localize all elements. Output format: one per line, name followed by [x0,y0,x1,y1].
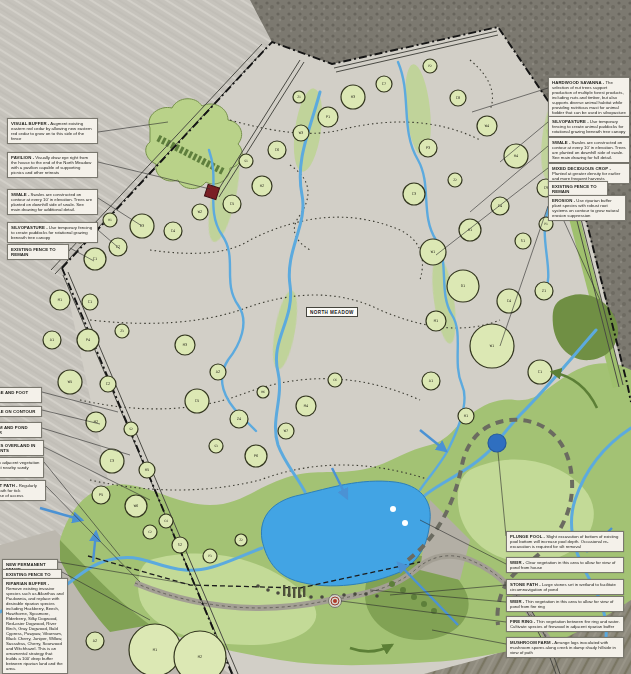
tree-canopy: P4 [77,329,99,351]
tree-canopy: C4 [491,197,509,215]
tree-code-label: H3 [351,95,355,99]
tree-code-label: P2 [428,64,432,68]
tree-canopy: O1 [447,270,479,302]
callout-weir: WEIR - Clear vegetation in this area to … [506,557,624,573]
tree-canopy: W1 [420,239,446,265]
tree-code-label: C4 [171,229,175,233]
tree-canopy: Z4 [230,410,248,428]
tree-canopy: H1 [458,408,474,424]
tree-canopy: W4 [477,116,497,136]
tree-code-label: C7 [382,82,386,86]
tree-canopy: M2 [86,412,106,432]
tree-canopy: M1 [129,624,181,674]
tree-code-label: Z3 [120,329,124,333]
tree-canopy: A1 [422,372,440,390]
tree-canopy: W2 [192,204,208,220]
tree-canopy: S2 [124,422,138,436]
tree-code-label: H6 [261,390,265,394]
tree-code-label: S3 [214,444,218,448]
tree-code-label: A1 [429,379,433,383]
tree-canopy: W5 [58,370,82,394]
callout-horse-and-foot-path: HORSE AND FOOT PATH - Regularly mow and … [0,480,46,501]
tree-code-label: S2 [178,543,182,547]
tree-canopy: C1 [528,360,552,384]
tree-code-label: P3 [208,554,212,558]
tree-canopy: M1 [426,311,446,331]
tree-canopy: M3 [175,335,195,355]
tree-canopy: C3 [100,449,124,473]
tree-canopy: A2 [86,632,104,650]
tree-code-label: C4 [507,299,511,303]
tree-code-label: W1 [490,344,494,348]
tree-canopy: P2 [423,59,437,73]
callout-swale: SWALE - Swales are constructed on contou… [7,189,98,215]
tree-canopy: C7 [376,76,392,92]
tree-canopy: W1 [470,324,514,368]
tree-code-label: C1 [88,300,92,304]
tree-code-label: P3 [426,146,430,150]
north-meadow-label: NORTH MEADOW [306,307,358,317]
tree-code-label: W4 [485,124,489,128]
plunge-pool [488,434,506,452]
tree-canopy: W7 [278,423,294,439]
tree-canopy: S1 [239,154,253,168]
callout-waterfall: WATERFALL - Thin adjacent vegetation to … [0,457,44,478]
tree-canopy: H1 [103,213,117,227]
callout-riparian-buffer: RIPARIAN BUFFER - Remove existing invasi… [2,578,68,674]
tree-code-label: Z1 [542,289,546,293]
tree-canopy: M4 [296,396,316,416]
tree-canopy: C1 [82,294,98,310]
tree-canopy: Z1 [293,91,305,103]
tree-canopy: C6 [268,141,286,159]
tree-code-label: M1 [58,298,62,302]
callout-swale: SWALE - Swales are constructed on contou… [548,137,630,163]
tree-canopy: A1 [43,331,61,349]
tree-code-label: S1 [244,159,248,163]
tree-canopy: H6 [257,386,269,398]
tree-code-label: Z4 [237,417,241,421]
callout-horse-and-foot-path: HORSE AND FOOT PATH [0,387,42,403]
tree-code-label: C1 [538,370,542,374]
callout-pavilion: PAVILION - Visually draw eye right from … [7,152,98,178]
tree-code-label: C2 [148,530,152,534]
tree-canopy: P5 [92,486,110,504]
callout-existing-fence-to-remain: EXISTING FENCE TO REMAIN [7,244,69,260]
tree-code-label: A2 [93,639,97,643]
tree-code-label: P1 [544,222,548,226]
tree-code-label: Z1 [297,95,301,99]
tree-canopy: H2 [252,176,272,196]
tree-code-label: Z2 [453,178,457,182]
tree-code-label: W3 [299,131,303,135]
tree-code-label: M1 [153,648,157,652]
tree-canopy: Z2 [235,534,247,546]
tree-code-label: C3 [412,192,416,196]
tree-code-label: C8 [456,96,460,100]
tree-canopy: Z1 [535,282,553,300]
tree-code-label: C5 [195,399,199,403]
tree-code-label: H5 [145,468,149,472]
tree-canopy: Z2 [448,173,462,187]
tree-canopy: C4 [497,289,521,313]
tree-code-label: M2 [198,655,202,659]
tree-code-label: H1 [108,218,112,222]
tree-code-label: Z2 [239,538,243,542]
callout-stream-and-pond-buffer: STREAM AND POND BUFFER [0,422,42,438]
tree-canopy: M1 [50,290,70,310]
callout-visual-buffer: VISUAL BUFFER - Augment existing eastern… [7,118,98,144]
tree-code-label: W1 [431,250,435,254]
weir-marker [390,506,396,512]
tree-canopy: C5 [185,389,209,413]
tree-canopy: P3 [419,139,437,157]
tree-code-label: P5 [99,493,103,497]
tree-canopy: C3 [403,183,425,205]
tree-code-label: M3 [183,343,187,347]
weir-marker [402,520,408,526]
callout-stone-path: STONE PATH - Large stones set in wetland… [506,579,624,595]
tree-code-label: P1 [326,115,330,119]
tree-canopy: H5 [139,462,155,478]
tree-canopy: C6 [328,373,342,387]
tree-canopy: H3 [341,85,365,109]
tree-code-label: W2 [198,210,202,214]
tree-canopy: S2 [172,537,188,553]
tree-code-label: H1 [464,414,468,418]
callout-swale-on-contour: SWALE ON CONTOUR [0,406,42,417]
tree-code-label: C2 [106,382,110,386]
tree-canopy: W3 [293,125,309,141]
callout-silvopasture: SILVOPASTURE - Use temporary fencing to … [7,222,98,243]
tree-code-label: C5 [230,202,234,206]
tree-code-label: W6 [134,504,138,508]
tree-canopy: P6 [245,445,267,467]
tree-code-label: O1 [461,284,465,288]
tree-canopy: C4 [164,222,182,240]
tree-canopy: S3 [209,439,223,453]
tree-canopy: C4 [159,514,173,528]
tree-code-label: W5 [68,380,72,384]
tree-code-label: S1 [521,239,525,243]
tree-canopy: C5 [223,195,241,213]
tree-canopy: W6 [125,495,147,517]
tree-code-label: C3 [110,459,114,463]
callout-creek-runs-overland-in-storm-events: CREEK RUNS OVERLAND IN STORM EVENTS [0,440,44,456]
tree-canopy: A2 [210,364,226,380]
tree-code-label: M1 [434,319,438,323]
site-plan-page: C1W1C2C3H1C4W2C5H2S1C6W3P1H3C7Z1P2C8W4H4… [0,0,631,674]
tree-code-label: M4 [304,404,308,408]
tree-code-label: C6 [275,148,279,152]
tree-code-label: A2 [216,370,220,374]
tree-code-label: P4 [86,338,90,342]
tree-code-label: P6 [254,454,258,458]
tree-code-label: C4 [164,519,168,523]
tree-canopy: S1 [515,233,531,249]
tree-code-label: A1 [50,338,54,342]
tree-canopy: C8 [450,90,466,106]
tree-canopy: P3 [203,549,217,563]
tree-code-label: H2 [260,184,264,188]
tree-code-label: C6 [333,378,337,382]
tree-canopy: Z3 [115,324,129,338]
callout-weir: WEIR - Thin vegetation in this area to a… [506,596,624,612]
callout-erosion: EROSION - Use riparian buffer plant spec… [548,195,626,221]
callout-plunge-pool: PLUNGE POOL - Slight excavation of botto… [506,531,624,552]
tree-code-label: W7 [284,429,288,433]
tree-canopy: C1 [84,248,106,270]
callout-silvopasture: SILVOPASTURE - Use temporary fencing to … [548,116,630,137]
callout-mushroom-farm: MUSHROOM FARM - Arrange logs inoculated … [506,637,624,658]
callout-fire-ring: FIRE RING - Thin vegetation between fire… [506,616,624,632]
fire-ring-marker [329,595,342,608]
tree-canopy: C2 [100,376,116,392]
tree-canopy: C2 [143,525,157,539]
tree-code-label: H4 [514,154,518,158]
tree-code-label: S2 [129,427,133,431]
tree-canopy: P1 [318,107,338,127]
